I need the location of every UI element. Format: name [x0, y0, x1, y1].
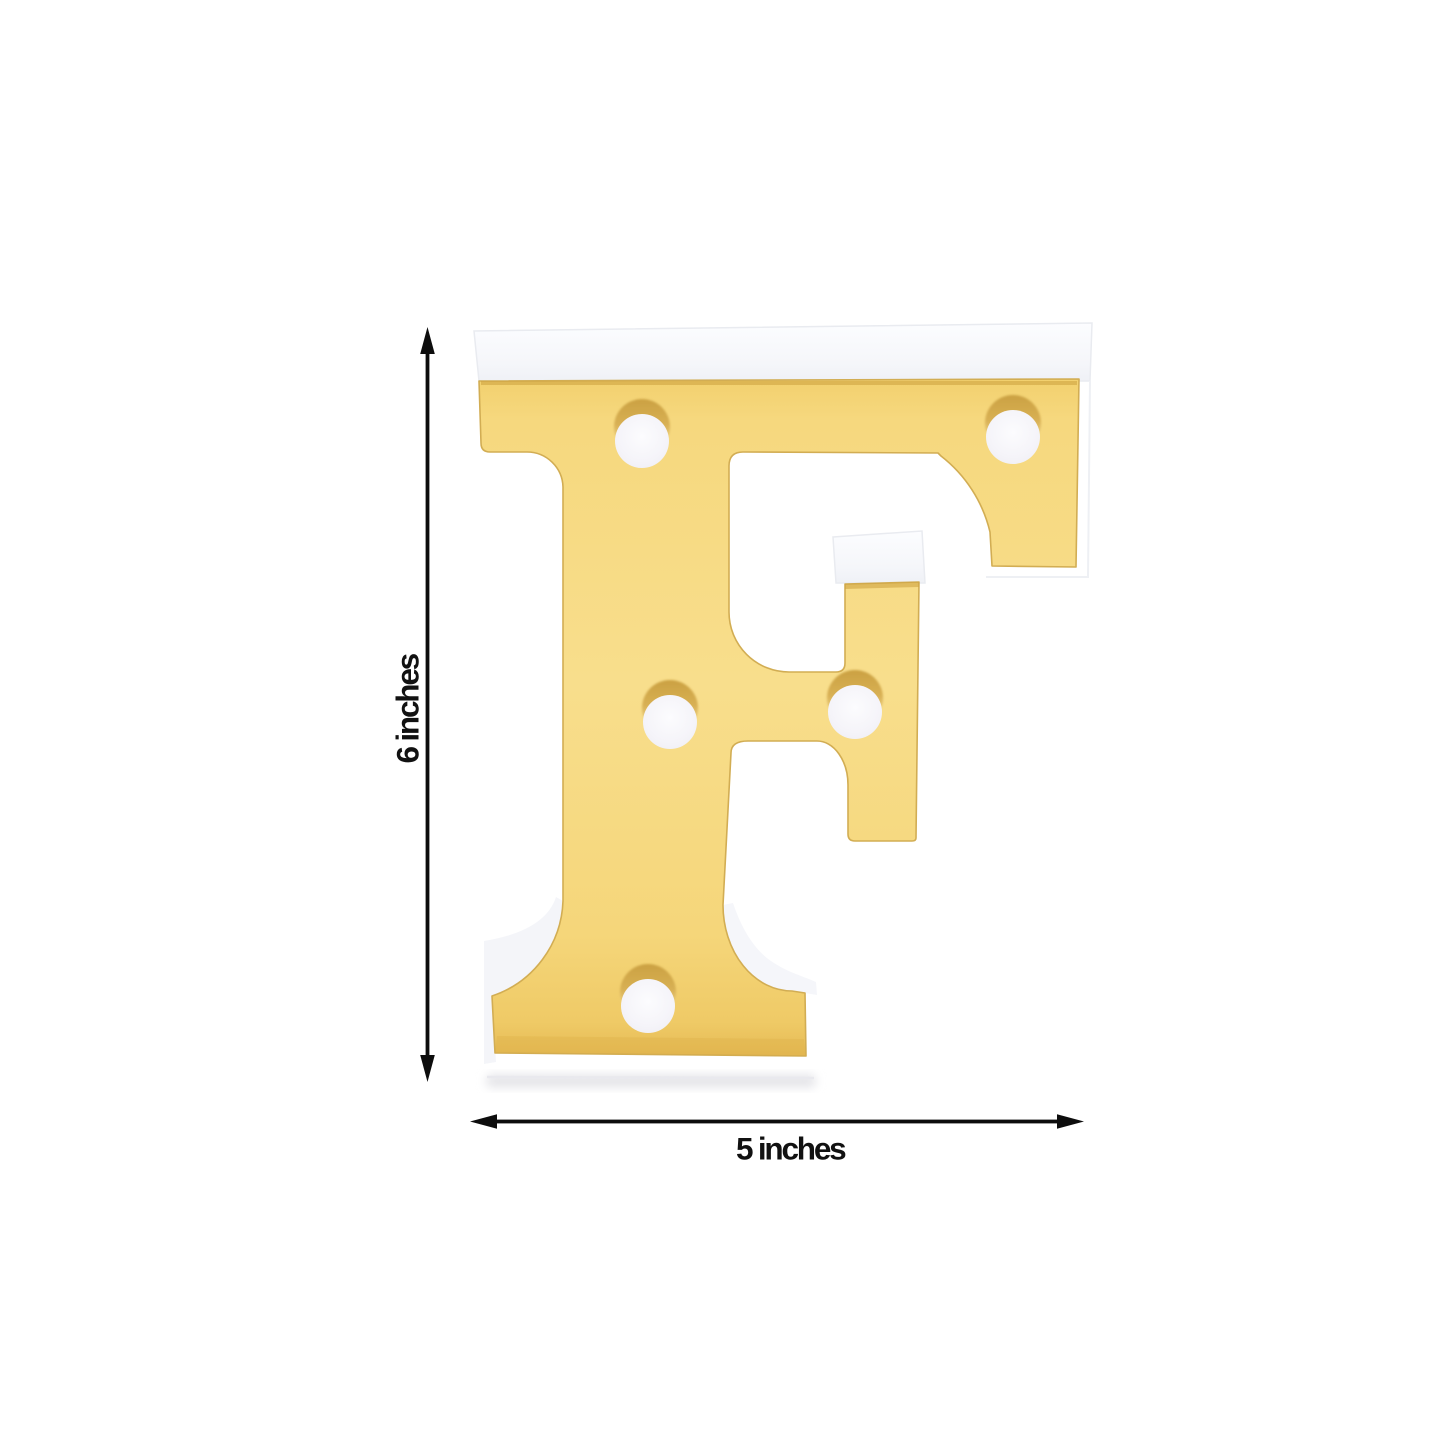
- svg-text:6 inches: 6 inches: [390, 653, 426, 763]
- svg-text:5 inches: 5 inches: [736, 1131, 846, 1167]
